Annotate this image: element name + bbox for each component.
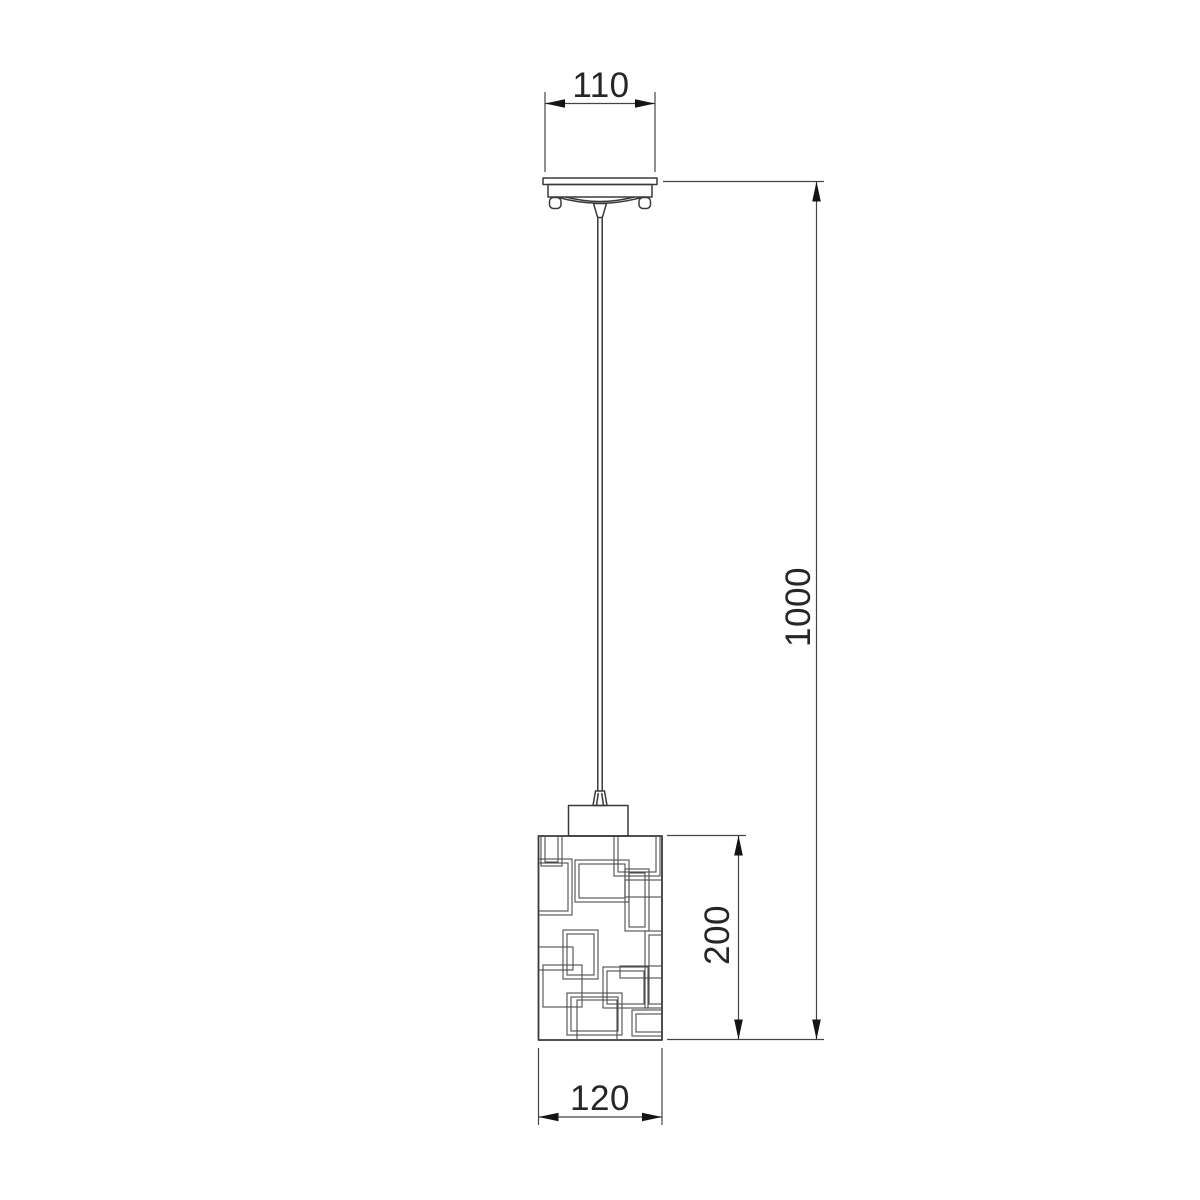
pattern-rect bbox=[541, 829, 562, 866]
arrow-right-icon bbox=[642, 1113, 662, 1122]
cable-strain-relief bbox=[593, 791, 607, 806]
pattern-rect bbox=[614, 824, 660, 876]
ceiling-canopy bbox=[543, 178, 657, 218]
lamp-shade-outline bbox=[539, 836, 663, 1040]
pattern-rect bbox=[618, 828, 656, 872]
dim-label-shade-height: 200 bbox=[698, 905, 737, 965]
strain-relief-inner-right bbox=[602, 793, 604, 806]
arrow-left-icon bbox=[545, 99, 565, 108]
pattern-rect bbox=[629, 873, 645, 927]
pattern-rect bbox=[603, 967, 648, 1008]
dim-label-canopy-width: 110 bbox=[572, 66, 629, 105]
arrow-down-icon bbox=[812, 1020, 821, 1040]
mounting-knob-left bbox=[550, 198, 562, 209]
pendant-lamp-dimension-drawing: 110 1000 200 bbox=[0, 0, 1200, 1200]
pattern-rect bbox=[563, 930, 598, 979]
suspension-cable bbox=[598, 218, 602, 792]
pattern-rect bbox=[528, 859, 572, 915]
pattern-rect bbox=[545, 833, 558, 862]
strain-relief-inner-left bbox=[597, 793, 599, 806]
dim-label-overall-height: 1000 bbox=[779, 567, 818, 647]
technical-drawing-canvas: 110 1000 200 bbox=[0, 0, 1200, 1200]
dimension-shade-width: 120 bbox=[539, 1048, 663, 1125]
pattern-rect bbox=[532, 863, 568, 911]
pattern-rect bbox=[625, 880, 670, 897]
arrow-right-icon bbox=[635, 99, 655, 108]
dimension-canopy-width: 110 bbox=[545, 66, 655, 172]
lamp-socket bbox=[569, 791, 629, 836]
socket-housing bbox=[569, 806, 629, 837]
pattern-rect bbox=[567, 934, 594, 975]
canopy-top-plate bbox=[543, 178, 657, 185]
pattern-rect bbox=[607, 971, 644, 1004]
dimension-overall-height: 1000 bbox=[663, 182, 824, 1040]
dimension-shade-height: 200 bbox=[667, 836, 746, 1040]
arrow-down-icon bbox=[734, 1020, 743, 1040]
pattern-rect bbox=[571, 997, 618, 1031]
dim-label-shade-width: 120 bbox=[570, 1079, 630, 1118]
pattern-rect bbox=[577, 1000, 617, 1060]
arrow-up-icon bbox=[734, 836, 743, 856]
pattern-rect bbox=[649, 935, 669, 1004]
canopy-body bbox=[548, 185, 652, 198]
pattern-rect bbox=[567, 993, 622, 1035]
arrow-up-icon bbox=[812, 182, 821, 202]
arrow-left-icon bbox=[539, 1113, 559, 1122]
pattern-rect bbox=[575, 860, 629, 902]
cable-grip-top bbox=[594, 204, 607, 218]
shade-mosaic-pattern bbox=[528, 824, 673, 1060]
mounting-knob-right bbox=[639, 198, 651, 209]
